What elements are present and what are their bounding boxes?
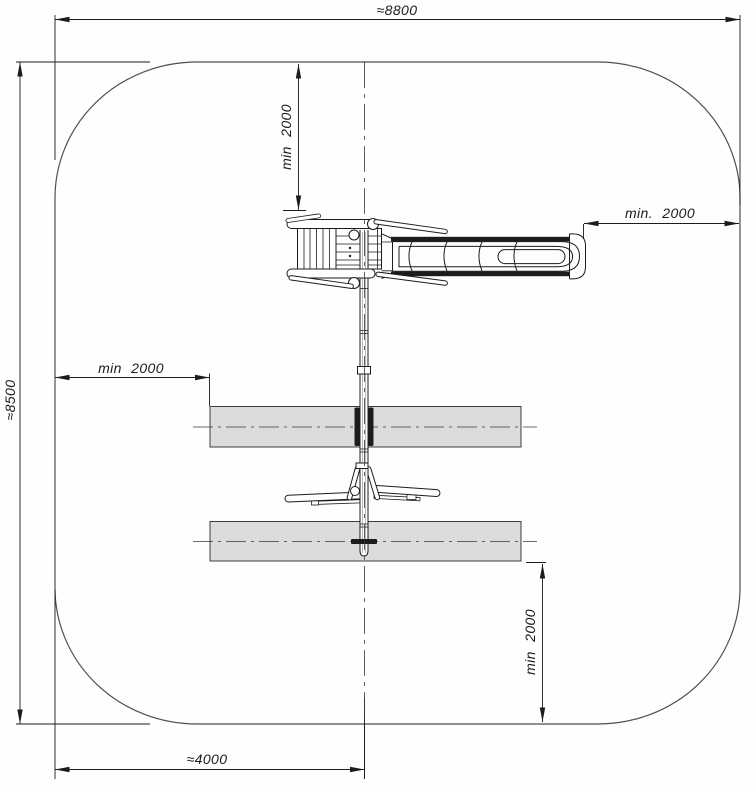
dim-overall-width: ≈8800 [55,2,740,205]
platform [336,229,382,270]
ladder [298,229,337,270]
dim-clearance-right-label: min. 2000 [625,205,695,221]
slide-rail-top [391,237,569,242]
plan-drawing: ≈8800 ≈8500 ≈4000 min 2000 min. 2000 min… [0,0,756,785]
beam-apex-cap [356,463,368,469]
dim-center-offset: ≈4000 [55,590,365,779]
dim-clearance-right: min. 2000 [584,205,740,239]
dim-clearance-top-label: min 2000 [278,104,294,170]
ladder-rungs [304,229,330,270]
dim-clearance-left-label: min 2000 [98,360,164,376]
dim-clearance-left: min 2000 [55,360,210,406]
dim-overall-height: ≈8500 [2,62,150,724]
dim-center-offset-label: ≈4000 [187,751,228,767]
safety-zone-boundary [55,62,740,724]
swing-seat-lower [351,539,377,544]
dim-overall-width-label: ≈8800 [377,2,418,18]
a-frame-joint [351,487,360,496]
dim-clearance-bottom-label: min 2000 [522,609,538,675]
handrail-top-right [374,219,448,234]
slide-rail-bottom [391,272,569,277]
dim-clearance-bottom: min 2000 [522,563,546,723]
drawing-sheet: ≈8800 ≈8500 ≈4000 min 2000 min. 2000 min… [0,0,756,785]
dim-clearance-top: min 2000 [278,64,306,211]
dim-overall-height-label: ≈8500 [2,380,18,421]
slide-end-cap [570,234,586,279]
slide [382,234,586,279]
